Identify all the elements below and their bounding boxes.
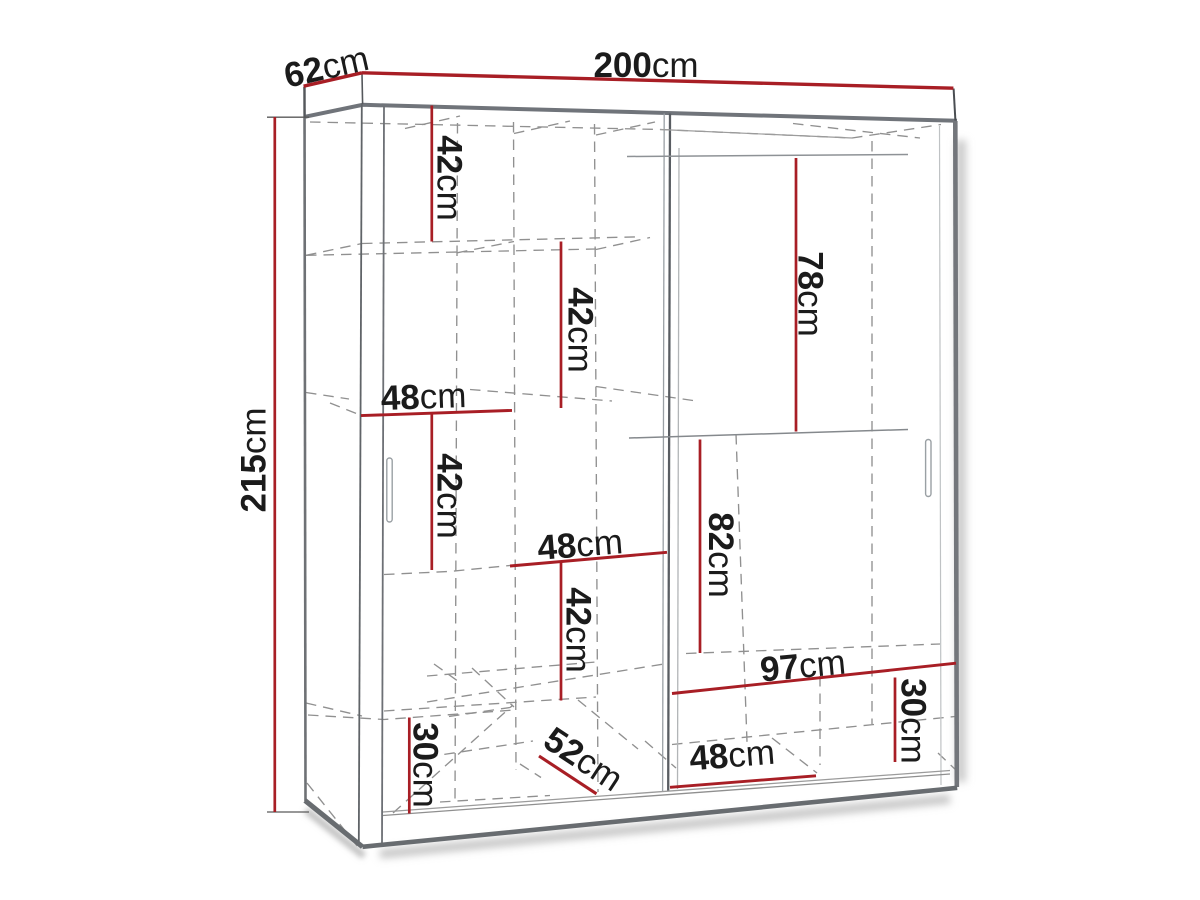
svg-text:42cm: 42cm	[561, 287, 600, 373]
svg-text:78cm: 78cm	[791, 251, 830, 337]
svg-text:48cm: 48cm	[536, 522, 624, 568]
svg-text:42cm: 42cm	[430, 453, 469, 539]
svg-text:48cm: 48cm	[380, 376, 467, 418]
svg-text:215cm: 215cm	[235, 407, 274, 512]
svg-text:200cm: 200cm	[593, 46, 698, 85]
svg-text:30cm: 30cm	[894, 678, 933, 764]
svg-text:30cm: 30cm	[406, 722, 445, 808]
svg-text:42cm: 42cm	[559, 587, 598, 673]
svg-text:82cm: 82cm	[701, 512, 740, 598]
svg-text:97cm: 97cm	[758, 643, 847, 690]
svg-text:42cm: 42cm	[430, 135, 469, 221]
svg-text:48cm: 48cm	[688, 733, 776, 779]
